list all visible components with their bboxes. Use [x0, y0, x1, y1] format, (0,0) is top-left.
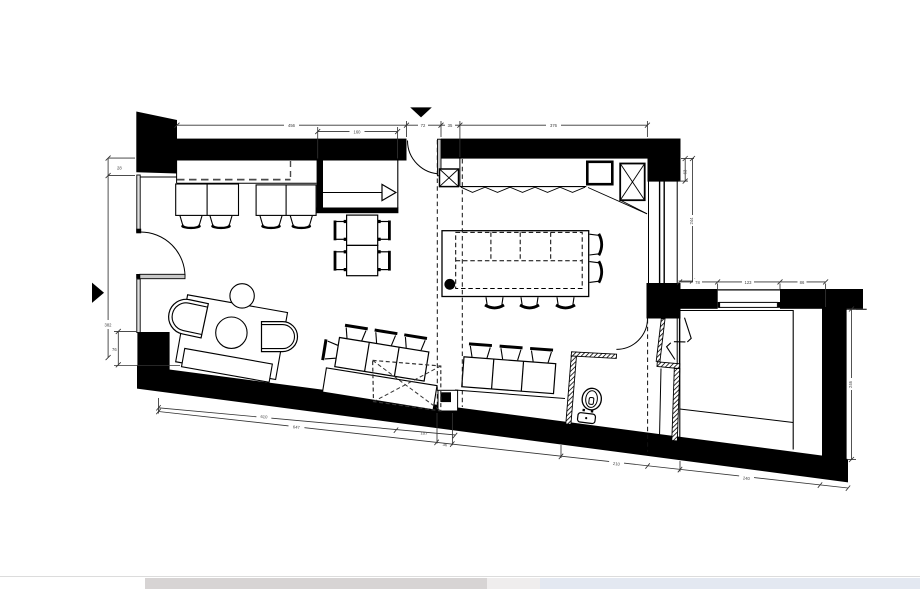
svg-text:86: 86	[800, 280, 805, 285]
svg-text:160: 160	[354, 130, 362, 135]
svg-text:72: 72	[421, 123, 426, 128]
svg-text:246: 246	[848, 380, 853, 388]
svg-text:376: 376	[550, 123, 558, 128]
svg-text:107: 107	[420, 430, 428, 436]
svg-text:382: 382	[105, 323, 113, 328]
svg-text:240: 240	[743, 475, 751, 481]
svg-text:244: 244	[689, 217, 694, 225]
svg-text:456: 456	[288, 123, 296, 128]
svg-text:78: 78	[695, 280, 700, 285]
svg-text:610: 610	[260, 414, 268, 420]
svg-text:76: 76	[112, 347, 117, 352]
svg-text:28: 28	[117, 166, 122, 171]
svg-text:210: 210	[613, 461, 621, 467]
svg-text:35: 35	[448, 123, 453, 128]
svg-text:123: 123	[745, 280, 753, 285]
svg-text:63: 63	[683, 169, 688, 174]
svg-text:647: 647	[293, 424, 301, 430]
